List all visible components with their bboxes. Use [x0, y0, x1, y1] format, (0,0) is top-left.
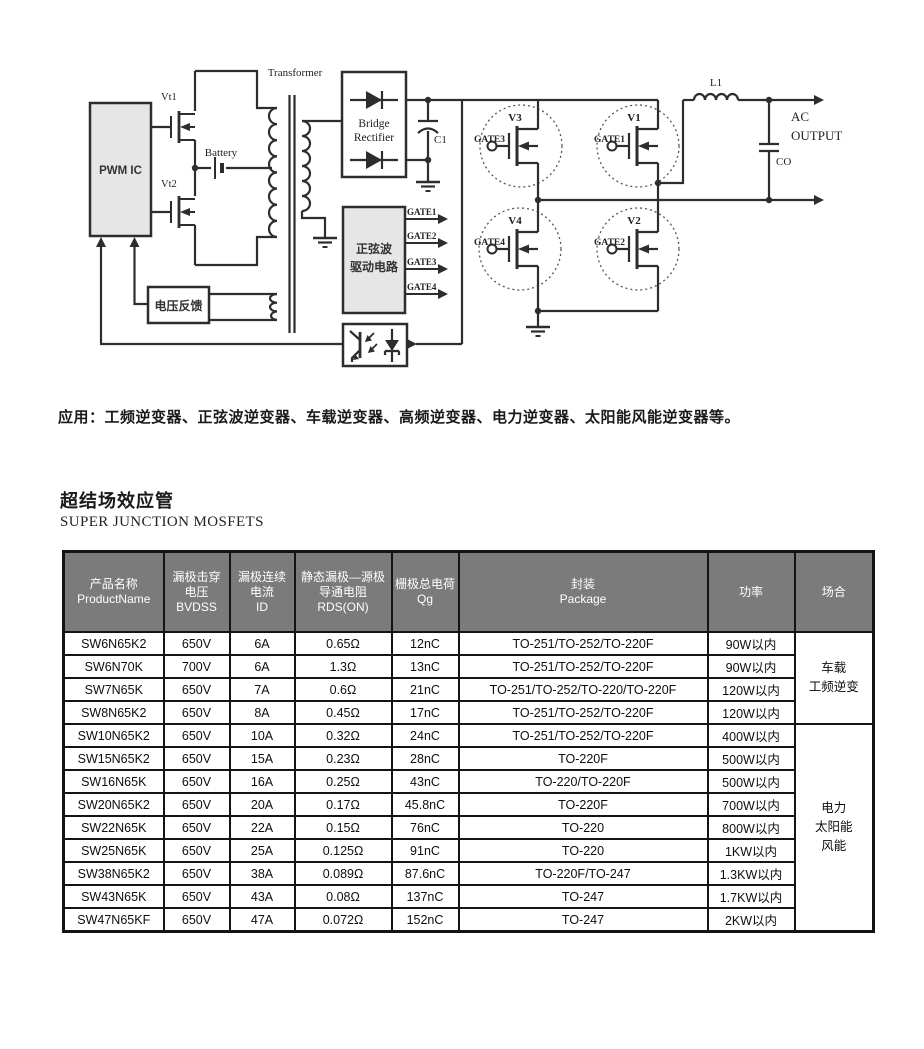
gate3-pin-label: GATE3 — [474, 135, 505, 145]
table-row: SW6N70K700V6A1.3Ω13nCTO-251/TO-252/TO-22… — [64, 655, 874, 678]
mosfet-v4 — [488, 229, 539, 269]
table-cell: TO-220/TO-220F — [459, 770, 708, 793]
table-cell: TO-251/TO-252/TO-220F — [459, 724, 708, 747]
table-cell: 6A — [230, 655, 295, 678]
sine-drive-label-2: 驱动电路 — [350, 259, 399, 274]
pwm-ic-label: PWM IC — [99, 165, 142, 177]
table-cell: 650V — [164, 839, 230, 862]
gate2-out-label: GATE2 — [407, 231, 437, 241]
table-cell: 650V — [164, 632, 230, 655]
sine-drive-label-1: 正弦波 — [356, 241, 393, 256]
application-group-cell: 电力 太阳能 风能 — [795, 724, 874, 932]
v3-label: V3 — [508, 112, 522, 124]
table-cell: 90W以内 — [708, 655, 795, 678]
table-cell: 137nC — [392, 885, 459, 908]
table-cell: TO-247 — [459, 885, 708, 908]
col-header-1: 漏极击穿电压BVDSS — [164, 552, 230, 633]
table-cell: 21nC — [392, 678, 459, 701]
table-cell: 22A — [230, 816, 295, 839]
table-cell: 0.23Ω — [295, 747, 392, 770]
table-cell: SW38N65K2 — [64, 862, 164, 885]
table-cell: 0.6Ω — [295, 678, 392, 701]
gate3-out-label: GATE3 — [407, 257, 437, 267]
v4-label: V4 — [508, 215, 522, 227]
gate1-pin-label: GATE1 — [594, 135, 625, 145]
mosfet-v1 — [608, 126, 659, 166]
table-row: SW16N65K650V16A0.25Ω43nCTO-220/TO-220F50… — [64, 770, 874, 793]
voltage-feedback-label: 电压反馈 — [154, 298, 202, 313]
bridge-label-1: Bridge — [358, 118, 389, 130]
table-cell: 700W以内 — [708, 793, 795, 816]
table-cell: 650V — [164, 747, 230, 770]
table-cell: 7A — [230, 678, 295, 701]
table-cell: 15A — [230, 747, 295, 770]
col-header-0: 产品名称ProductName — [64, 552, 164, 633]
mosfet-table: 产品名称ProductName漏极击穿电压BVDSS漏极连续电流ID静态漏极—源… — [62, 550, 875, 933]
table-cell: 0.08Ω — [295, 885, 392, 908]
table-cell: 650V — [164, 816, 230, 839]
table-cell: SW6N65K2 — [64, 632, 164, 655]
table-row: SW38N65K2650V38A0.089Ω87.6nCTO-220F/TO-2… — [64, 862, 874, 885]
table-cell: 76nC — [392, 816, 459, 839]
mosfet-vt2 — [171, 196, 195, 228]
table-header-row: 产品名称ProductName漏极击穿电压BVDSS漏极连续电流ID静态漏极—源… — [64, 552, 874, 633]
table-cell: 24nC — [392, 724, 459, 747]
table-cell: 500W以内 — [708, 770, 795, 793]
table-cell: 8A — [230, 701, 295, 724]
table-row: SW7N65K650V7A0.6Ω21nCTO-251/TO-252/TO-22… — [64, 678, 874, 701]
table-cell: 43nC — [392, 770, 459, 793]
table-cell: 1KW以内 — [708, 839, 795, 862]
table-cell: 1.7KW以内 — [708, 885, 795, 908]
ground-secondary — [313, 238, 337, 247]
gate2-pin-label: GATE2 — [594, 238, 625, 248]
table-cell: 0.65Ω — [295, 632, 392, 655]
table-cell: 0.089Ω — [295, 862, 392, 885]
output-label: OUTPUT — [791, 128, 842, 143]
table-cell: 120W以内 — [708, 701, 795, 724]
wires-secondary — [302, 121, 342, 238]
table-cell: SW20N65K2 — [64, 793, 164, 816]
table-cell: 47A — [230, 908, 295, 932]
table-cell: 400W以内 — [708, 724, 795, 747]
table-cell: SW15N65K2 — [64, 747, 164, 770]
table-cell: 1.3Ω — [295, 655, 392, 678]
table-cell: 2KW以内 — [708, 908, 795, 932]
col-header-3: 静态漏极—源极导通电阻RDS(ON) — [295, 552, 392, 633]
section-title-en: SUPER JUNCTION MOSFETS — [60, 514, 264, 531]
table-cell: SW16N65K — [64, 770, 164, 793]
table-cell: 650V — [164, 701, 230, 724]
table-cell: 700V — [164, 655, 230, 678]
table-cell: 45.8nC — [392, 793, 459, 816]
co-label: CO — [776, 156, 791, 168]
table-cell: 650V — [164, 770, 230, 793]
l1-label: L1 — [710, 77, 722, 89]
table-cell: SW8N65K2 — [64, 701, 164, 724]
table-cell: TO-251/TO-252/TO-220F — [459, 655, 708, 678]
battery-label: Battery — [205, 147, 238, 159]
table-cell: 650V — [164, 862, 230, 885]
col-header-2: 漏极连续电流ID — [230, 552, 295, 633]
table-cell: 0.125Ω — [295, 839, 392, 862]
table-cell: 43A — [230, 885, 295, 908]
gate-output-arrows — [438, 214, 448, 299]
arrow-into-optocoupler — [407, 339, 417, 349]
table-cell: 13nC — [392, 655, 459, 678]
applications-text: 应用：工频逆变器、正弦波逆变器、车载逆变器、高频逆变器、电力逆变器、太阳能风能逆… — [58, 406, 878, 427]
table-cell: 6A — [230, 632, 295, 655]
table-row: SW43N65K650V43A0.08Ω137nCTO-2471.7KW以内 — [64, 885, 874, 908]
wires-hbridge — [538, 94, 816, 327]
mosfet-table-container: 产品名称ProductName漏极击穿电压BVDSS漏极连续电流ID静态漏极—源… — [62, 550, 875, 933]
table-cell: 0.15Ω — [295, 816, 392, 839]
bridge-label-2: Rectifier — [354, 132, 394, 144]
table-cell: 650V — [164, 793, 230, 816]
mosfet-circles — [479, 105, 679, 290]
gate1-out-label: GATE1 — [407, 207, 437, 217]
col-header-4: 栅极总电荷Qg — [392, 552, 459, 633]
output-arrows — [814, 95, 824, 205]
table-row: SW20N65K2650V20A0.17Ω45.8nCTO-220F700W以内 — [64, 793, 874, 816]
table-cell: TO-220F — [459, 747, 708, 770]
col-header-6: 功率 — [708, 552, 795, 633]
table-row: SW6N65K2650V6A0.65Ω12nCTO-251/TO-252/TO-… — [64, 632, 874, 655]
table-cell: 0.45Ω — [295, 701, 392, 724]
section-title-cn: 超结场效应管 — [60, 487, 174, 513]
table-cell: 152nC — [392, 908, 459, 932]
ground-hbridge — [526, 327, 550, 336]
table-cell: TO-220F/TO-247 — [459, 862, 708, 885]
table-cell: 38A — [230, 862, 295, 885]
table-cell: SW22N65K — [64, 816, 164, 839]
battery-symbol — [215, 157, 222, 179]
table-cell: 0.17Ω — [295, 793, 392, 816]
table-cell: 1.3KW以内 — [708, 862, 795, 885]
mosfet-vt1 — [171, 111, 195, 143]
gate4-pin-label: GATE4 — [474, 238, 505, 248]
table-cell: 28nC — [392, 747, 459, 770]
table-cell: 650V — [164, 724, 230, 747]
table-row: SW25N65K650V25A0.125Ω91nCTO-2201KW以内 — [64, 839, 874, 862]
table-cell: SW10N65K2 — [64, 724, 164, 747]
arrow-into-pwm-1 — [96, 237, 106, 247]
mosfet-v2 — [608, 229, 659, 269]
table-row: SW10N65K2650V10A0.32Ω24nCTO-251/TO-252/T… — [64, 724, 874, 747]
col-header-7: 场合 — [795, 552, 874, 633]
table-cell: TO-251/TO-252/TO-220F — [459, 632, 708, 655]
table-cell: 12nC — [392, 632, 459, 655]
table-cell: 800W以内 — [708, 816, 795, 839]
vt2-label: Vt2 — [161, 179, 177, 190]
table-cell: 25A — [230, 839, 295, 862]
datasheet-page: PWM IC Vt1 Vt2 Battery Transformer 电压反馈 … — [0, 0, 924, 1049]
table-row: SW8N65K2650V8A0.45Ω17nCTO-251/TO-252/TO-… — [64, 701, 874, 724]
table-cell: 0.32Ω — [295, 724, 392, 747]
table-cell: 650V — [164, 908, 230, 932]
transformer-core — [290, 95, 295, 333]
transformer-label: Transformer — [268, 67, 323, 79]
table-cell: SW7N65K — [64, 678, 164, 701]
gate4-out-label: GATE4 — [407, 282, 437, 292]
arrow-into-pwm-2 — [130, 237, 140, 247]
table-cell: TO-220F — [459, 793, 708, 816]
v1-label: V1 — [627, 112, 640, 124]
table-cell: 17nC — [392, 701, 459, 724]
table-cell: 10A — [230, 724, 295, 747]
table-cell: TO-220 — [459, 839, 708, 862]
table-cell: TO-220 — [459, 816, 708, 839]
table-cell: 16A — [230, 770, 295, 793]
table-cell: SW43N65K — [64, 885, 164, 908]
table-cell: 20A — [230, 793, 295, 816]
col-header-5: 封装Package — [459, 552, 708, 633]
c1-label: C1 — [434, 134, 447, 146]
table-cell: 650V — [164, 678, 230, 701]
ground-c1 — [416, 182, 440, 191]
junction-dots — [192, 97, 772, 314]
mosfet-v3 — [488, 126, 539, 166]
table-cell: SW47N65KF — [64, 908, 164, 932]
ac-label: AC — [791, 109, 809, 124]
table-cell: 650V — [164, 885, 230, 908]
table-cell: 0.072Ω — [295, 908, 392, 932]
table-cell: 500W以内 — [708, 747, 795, 770]
application-group-cell: 车载 工频逆变 — [795, 632, 874, 724]
table-cell: TO-247 — [459, 908, 708, 932]
table-body: SW6N65K2650V6A0.65Ω12nCTO-251/TO-252/TO-… — [64, 632, 874, 932]
table-cell: 91nC — [392, 839, 459, 862]
inverter-circuit-diagram: PWM IC Vt1 Vt2 Battery Transformer 电压反馈 … — [0, 0, 924, 385]
table-row: SW15N65K2650V15A0.23Ω28nCTO-220F500W以内 — [64, 747, 874, 770]
table-cell: 0.25Ω — [295, 770, 392, 793]
table-cell: 120W以内 — [708, 678, 795, 701]
table-cell: 90W以内 — [708, 632, 795, 655]
table-row: SW47N65KF650V47A0.072Ω152nCTO-2472KW以内 — [64, 908, 874, 932]
table-cell: SW6N70K — [64, 655, 164, 678]
table-cell: SW25N65K — [64, 839, 164, 862]
table-cell: TO-251/TO-252/TO-220/TO-220F — [459, 678, 708, 701]
v2-label: V2 — [627, 215, 641, 227]
table-row: SW22N65K650V22A0.15Ω76nCTO-220800W以内 — [64, 816, 874, 839]
table-cell: TO-251/TO-252/TO-220F — [459, 701, 708, 724]
vt1-label: Vt1 — [161, 92, 177, 103]
table-cell: 87.6nC — [392, 862, 459, 885]
